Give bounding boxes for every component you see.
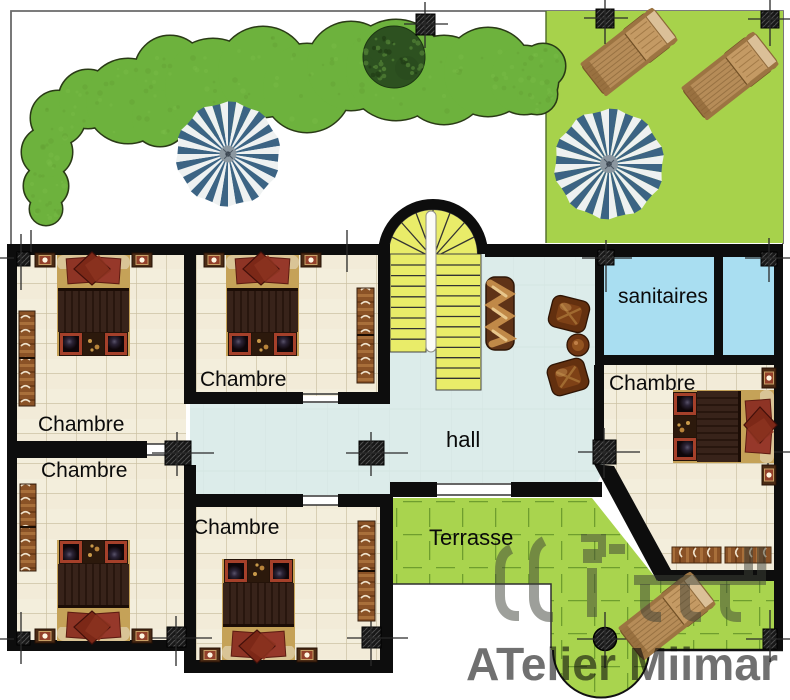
svg-text:Chambre: Chambre — [609, 372, 695, 395]
svg-text:sanitaires: sanitaires — [618, 285, 708, 308]
svg-text:Chambre: Chambre — [38, 413, 124, 436]
svg-text:Chambre: Chambre — [200, 368, 286, 391]
svg-text:Terrasse: Terrasse — [429, 525, 513, 550]
svg-text:ATelier Miimar: ATelier Miimar — [466, 638, 778, 690]
svg-text:Chambre: Chambre — [193, 516, 279, 539]
svg-text:hall: hall — [446, 427, 480, 452]
svg-text:Chambre: Chambre — [41, 459, 127, 482]
